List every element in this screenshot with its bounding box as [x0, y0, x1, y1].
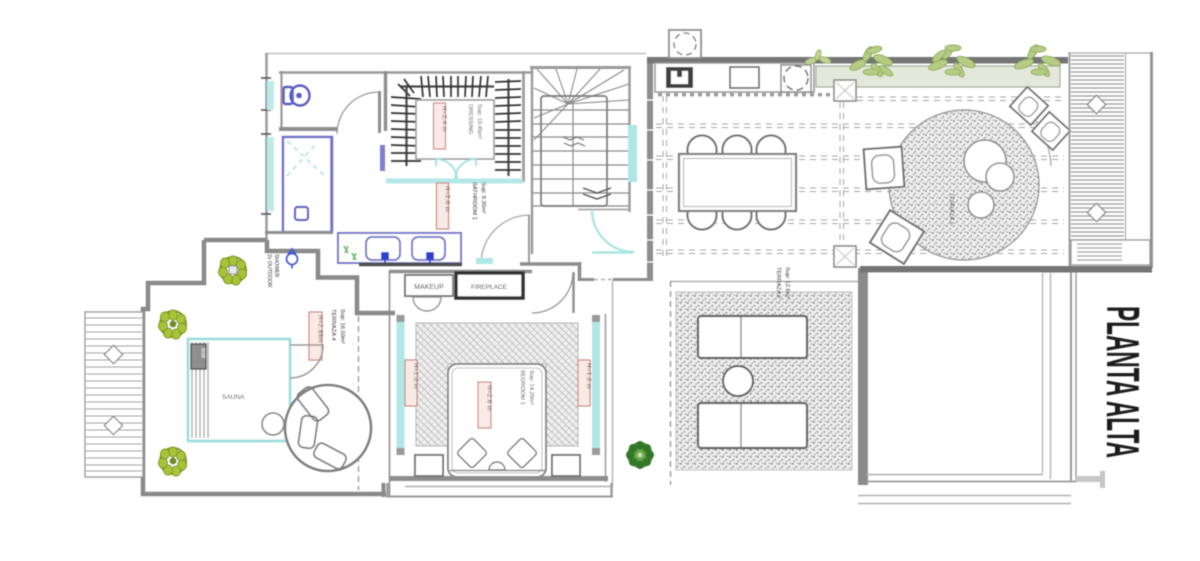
svg-text:PLANTA ALTA: PLANTA ALTA: [1097, 306, 1149, 458]
svg-text:H=1.0 m: H=1.0 m: [412, 363, 418, 389]
svg-text:TERRAZA 1: TERRAZA 1: [948, 193, 954, 225]
svg-text:Sup: 9.35m²: Sup: 9.35m²: [480, 182, 486, 214]
svg-text:H=2.4 m: H=2.4 m: [441, 106, 447, 132]
svg-text:Sup: 12.6m²: Sup: 12.6m²: [784, 267, 790, 299]
svg-text:BATHROOM 1: BATHROOM 1: [471, 182, 477, 220]
svg-text:SHOWER: SHOWER: [273, 254, 279, 278]
svg-text:TERRAZA 2: TERRAZA 2: [775, 267, 781, 299]
svg-text:H=1.0 m: H=1.0 m: [585, 363, 591, 389]
svg-text:6kW: 6kW: [200, 348, 206, 358]
svg-text:Sup: 16.50m²: Sup: 16.50m²: [339, 309, 345, 344]
svg-text:BEDROOM 1: BEDROOM 1: [519, 370, 525, 405]
svg-text:2x OUTDOOR: 2x OUTDOOR: [266, 254, 272, 288]
svg-text:TERRAZA 4: TERRAZA 4: [330, 309, 336, 341]
svg-text:H=2.6 m: H=2.6 m: [486, 385, 492, 411]
svg-text:H=2.88m: H=2.88m: [317, 315, 323, 343]
svg-text:H=2.6 m: H=2.6 m: [444, 186, 450, 212]
svg-text:FIREPLACE: FIREPLACE: [471, 284, 508, 291]
svg-text:Sup: 10.45m²: Sup: 10.45m²: [476, 104, 482, 139]
svg-text:SAUNA: SAUNA: [222, 394, 245, 401]
svg-text:MAKEUP: MAKEUP: [414, 284, 444, 291]
svg-text:Sup: 14.20m²: Sup: 14.20m²: [528, 370, 534, 405]
svg-text:DRESSING: DRESSING: [467, 104, 473, 135]
